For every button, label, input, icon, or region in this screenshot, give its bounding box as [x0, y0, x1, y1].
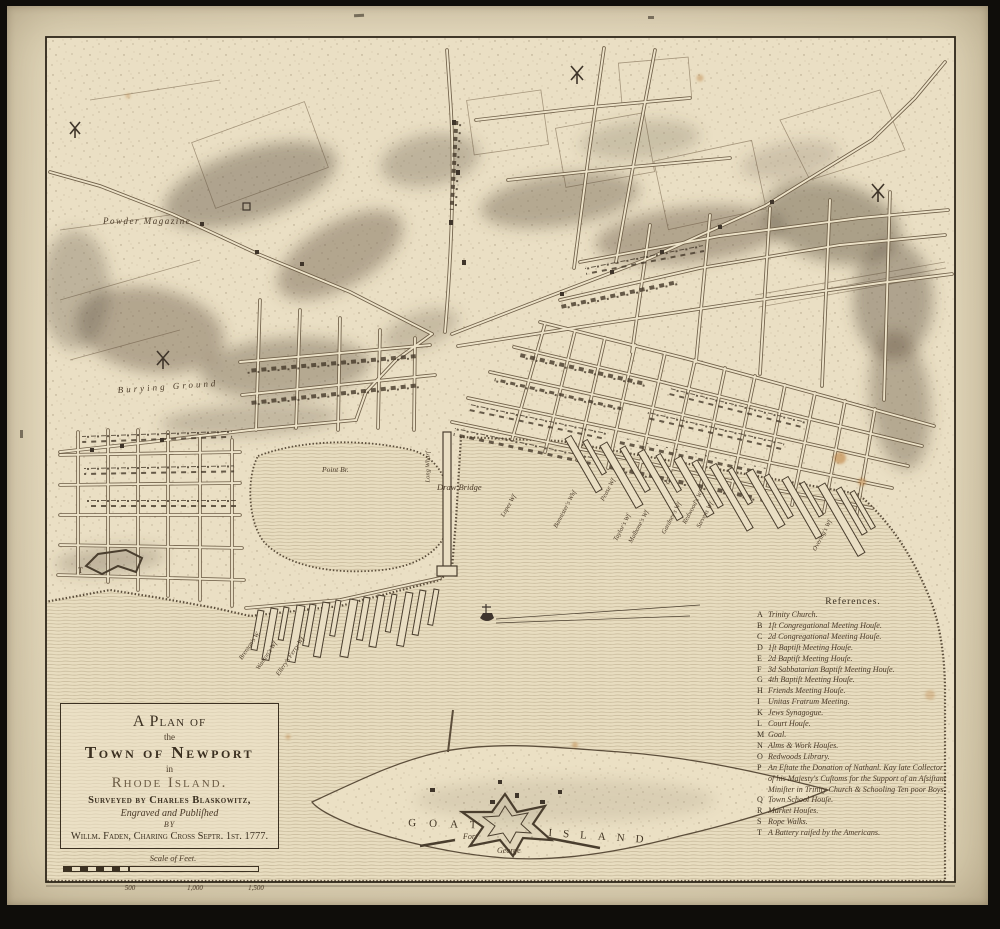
scale-label: Scale of Feet. [98, 853, 248, 863]
reference-item: ATrinity Church. [757, 610, 949, 621]
reference-text: Redwoods Library. [768, 752, 949, 763]
reference-item: E2d Baptiſt Meeting Houſe. [757, 654, 949, 665]
scale-bar-rule: 500 1,000 1,500 [63, 866, 259, 872]
reference-letter: T [757, 828, 768, 839]
reference-item: LCourt Houſe. [757, 719, 949, 730]
reference-letter: O [757, 752, 768, 763]
reference-letter: S [757, 817, 768, 828]
scale-tick-1500: 1,500 [248, 884, 264, 892]
reference-text: 2d Congregational Meeting Houſe. [768, 632, 949, 643]
reference-item: MGoal. [757, 730, 949, 741]
label-point-br: Point Br. [322, 466, 349, 474]
reference-item: IUnitas Fratrum Meeting. [757, 697, 949, 708]
map-sheet-photo: { "title_cartouche": { "line1": "A Plan … [0, 0, 1000, 929]
scale-bar: Scale of Feet. 500 1,000 1,500 [63, 853, 259, 872]
reference-text: Jews Synagogue. [768, 708, 949, 719]
title-line-4: in [61, 764, 278, 774]
scale-tick-500: 500 [125, 884, 136, 892]
scale-tick-1000: 1,000 [187, 884, 203, 892]
reference-item: F3d Sabbatarian Baptiſt Meeting Houſe. [757, 665, 949, 676]
reference-item: B1ſt Congregational Meeting Houſe. [757, 621, 949, 632]
reference-text: Market Houſes. [768, 806, 949, 817]
reference-item: QTown School Houſe. [757, 795, 949, 806]
reference-item: KJews Synagogue. [757, 708, 949, 719]
reference-item: ORedwoods Library. [757, 752, 949, 763]
engraver-credit: Engraved and Publiſhed [61, 808, 278, 819]
reference-letter: R [757, 806, 768, 817]
reference-letter: K [757, 708, 768, 719]
label-fort: Fort [463, 833, 477, 841]
reference-letter: I [757, 697, 768, 708]
reference-letter: E [757, 654, 768, 665]
reference-item: RMarket Houſes. [757, 806, 949, 817]
label-powder-magazine: Powder Magazine [103, 217, 191, 226]
reference-letter: N [757, 741, 768, 752]
reference-text: Town School Houſe. [768, 795, 949, 806]
surveyor-credit: Surveyed by Charles Blaskowitz, [61, 795, 278, 806]
reference-item: C2d Congregational Meeting Houſe. [757, 632, 949, 643]
reference-letter: H [757, 686, 768, 697]
scale-bar-subdivisions [64, 867, 130, 871]
reference-text: Unitas Fratrum Meeting. [768, 697, 949, 708]
reference-letter: M [757, 730, 768, 741]
title-cartouche: A Plan of the Town of Newport in Rhode I… [60, 703, 279, 849]
reference-letter: B [757, 621, 768, 632]
reference-text: 2d Baptiſt Meeting Houſe. [768, 654, 949, 665]
reference-letter: Q [757, 795, 768, 806]
reference-letter: D [757, 643, 768, 654]
reference-text: 1ſt Congregational Meeting Houſe. [768, 621, 949, 632]
reference-item: G4th Baptiſt Meeting Houſe. [757, 675, 949, 686]
reference-text: Rope Walks. [768, 817, 949, 828]
reference-item: D1ſt Baptiſt Meeting Houſe. [757, 643, 949, 654]
publisher-imprint: Willm. Faden, Charing Croſs Septr. 1st. … [61, 831, 278, 842]
label-long-wharf: Long Wharf [426, 451, 433, 482]
reference-text: Goal. [768, 730, 949, 741]
reference-item: NAlms & Work Houſes. [757, 741, 949, 752]
reference-text: A Battery raiſed by the Americans. [768, 828, 949, 839]
reference-text: 4th Baptiſt Meeting Houſe. [768, 675, 949, 686]
reference-letter: F [757, 665, 768, 676]
reference-letter: P [757, 763, 768, 796]
by-line: BY [61, 820, 278, 829]
reference-letter: A [757, 610, 768, 621]
reference-text: 3d Sabbatarian Baptiſt Meeting Houſe. [768, 665, 949, 676]
reference-item: HFriends Meeting Houſe. [757, 686, 949, 697]
reference-text: Trinity Church. [768, 610, 949, 621]
map-title: Town of Newport [61, 743, 278, 763]
reference-item: TA Battery raiſed by the Americans. [757, 828, 949, 839]
reference-text: Friends Meeting Houſe. [768, 686, 949, 697]
reference-letter: G [757, 675, 768, 686]
title-line-1: A Plan of [61, 713, 278, 731]
reference-text: Alms & Work Houſes. [768, 741, 949, 752]
reference-item: SRope Walks. [757, 817, 949, 828]
reference-text: 1ſt Baptiſt Meeting Houſe. [768, 643, 949, 654]
reference-item: PAn Eſtate the Donation of Nathanl. Kay … [757, 763, 949, 796]
title-line-2: the [61, 732, 278, 742]
label-battery-t: T [78, 567, 83, 575]
reference-letter: L [757, 719, 768, 730]
reference-letter: C [757, 632, 768, 643]
reference-text: Court Houſe. [768, 719, 949, 730]
references-title: References. [757, 597, 949, 607]
reference-text: An Eſtate the Donation of Nathanl. Kay l… [768, 763, 949, 796]
title-line-5: Rhode Island. [61, 775, 278, 792]
label-george: George [497, 847, 521, 855]
label-draw-bridge: Draw Bridge [437, 483, 482, 492]
references-legend: References. ATrinity Church. B1ſt Congre… [757, 597, 949, 839]
